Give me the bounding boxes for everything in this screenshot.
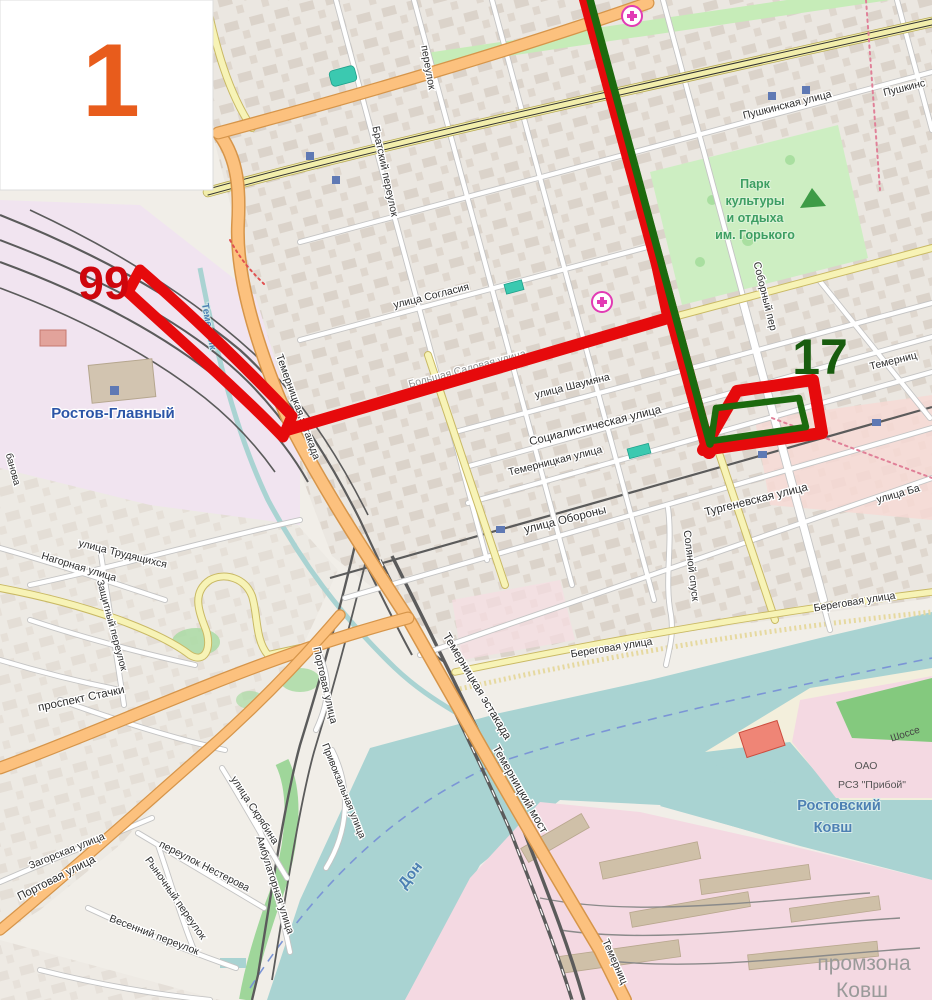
priboi-label: РСЗ "Прибой" — [838, 779, 906, 791]
route-17-badge: 17 — [792, 329, 848, 385]
promzona-label: Ковш — [836, 979, 888, 1000]
park-label: и отдыха — [727, 211, 785, 225]
map-canvas[interactable]: Пушкинская улица Пушкинс улица Согласия … — [0, 0, 932, 1000]
legend-number: 1 — [82, 23, 140, 139]
promzona-label: промзона — [817, 952, 911, 975]
route-99-badge: 99 — [78, 257, 129, 309]
park-label: им. Горького — [715, 228, 795, 242]
hospital-icon — [622, 6, 642, 26]
kovsh-label: Ковш — [814, 820, 853, 836]
hospital-icon — [592, 292, 612, 312]
park-label: Парк — [740, 177, 771, 191]
station-label: Ростов-Главный — [51, 405, 174, 422]
kovsh-label: Ростовский — [797, 798, 881, 814]
priboi-label: ОАО — [855, 760, 878, 772]
park-label: культуры — [725, 194, 784, 208]
